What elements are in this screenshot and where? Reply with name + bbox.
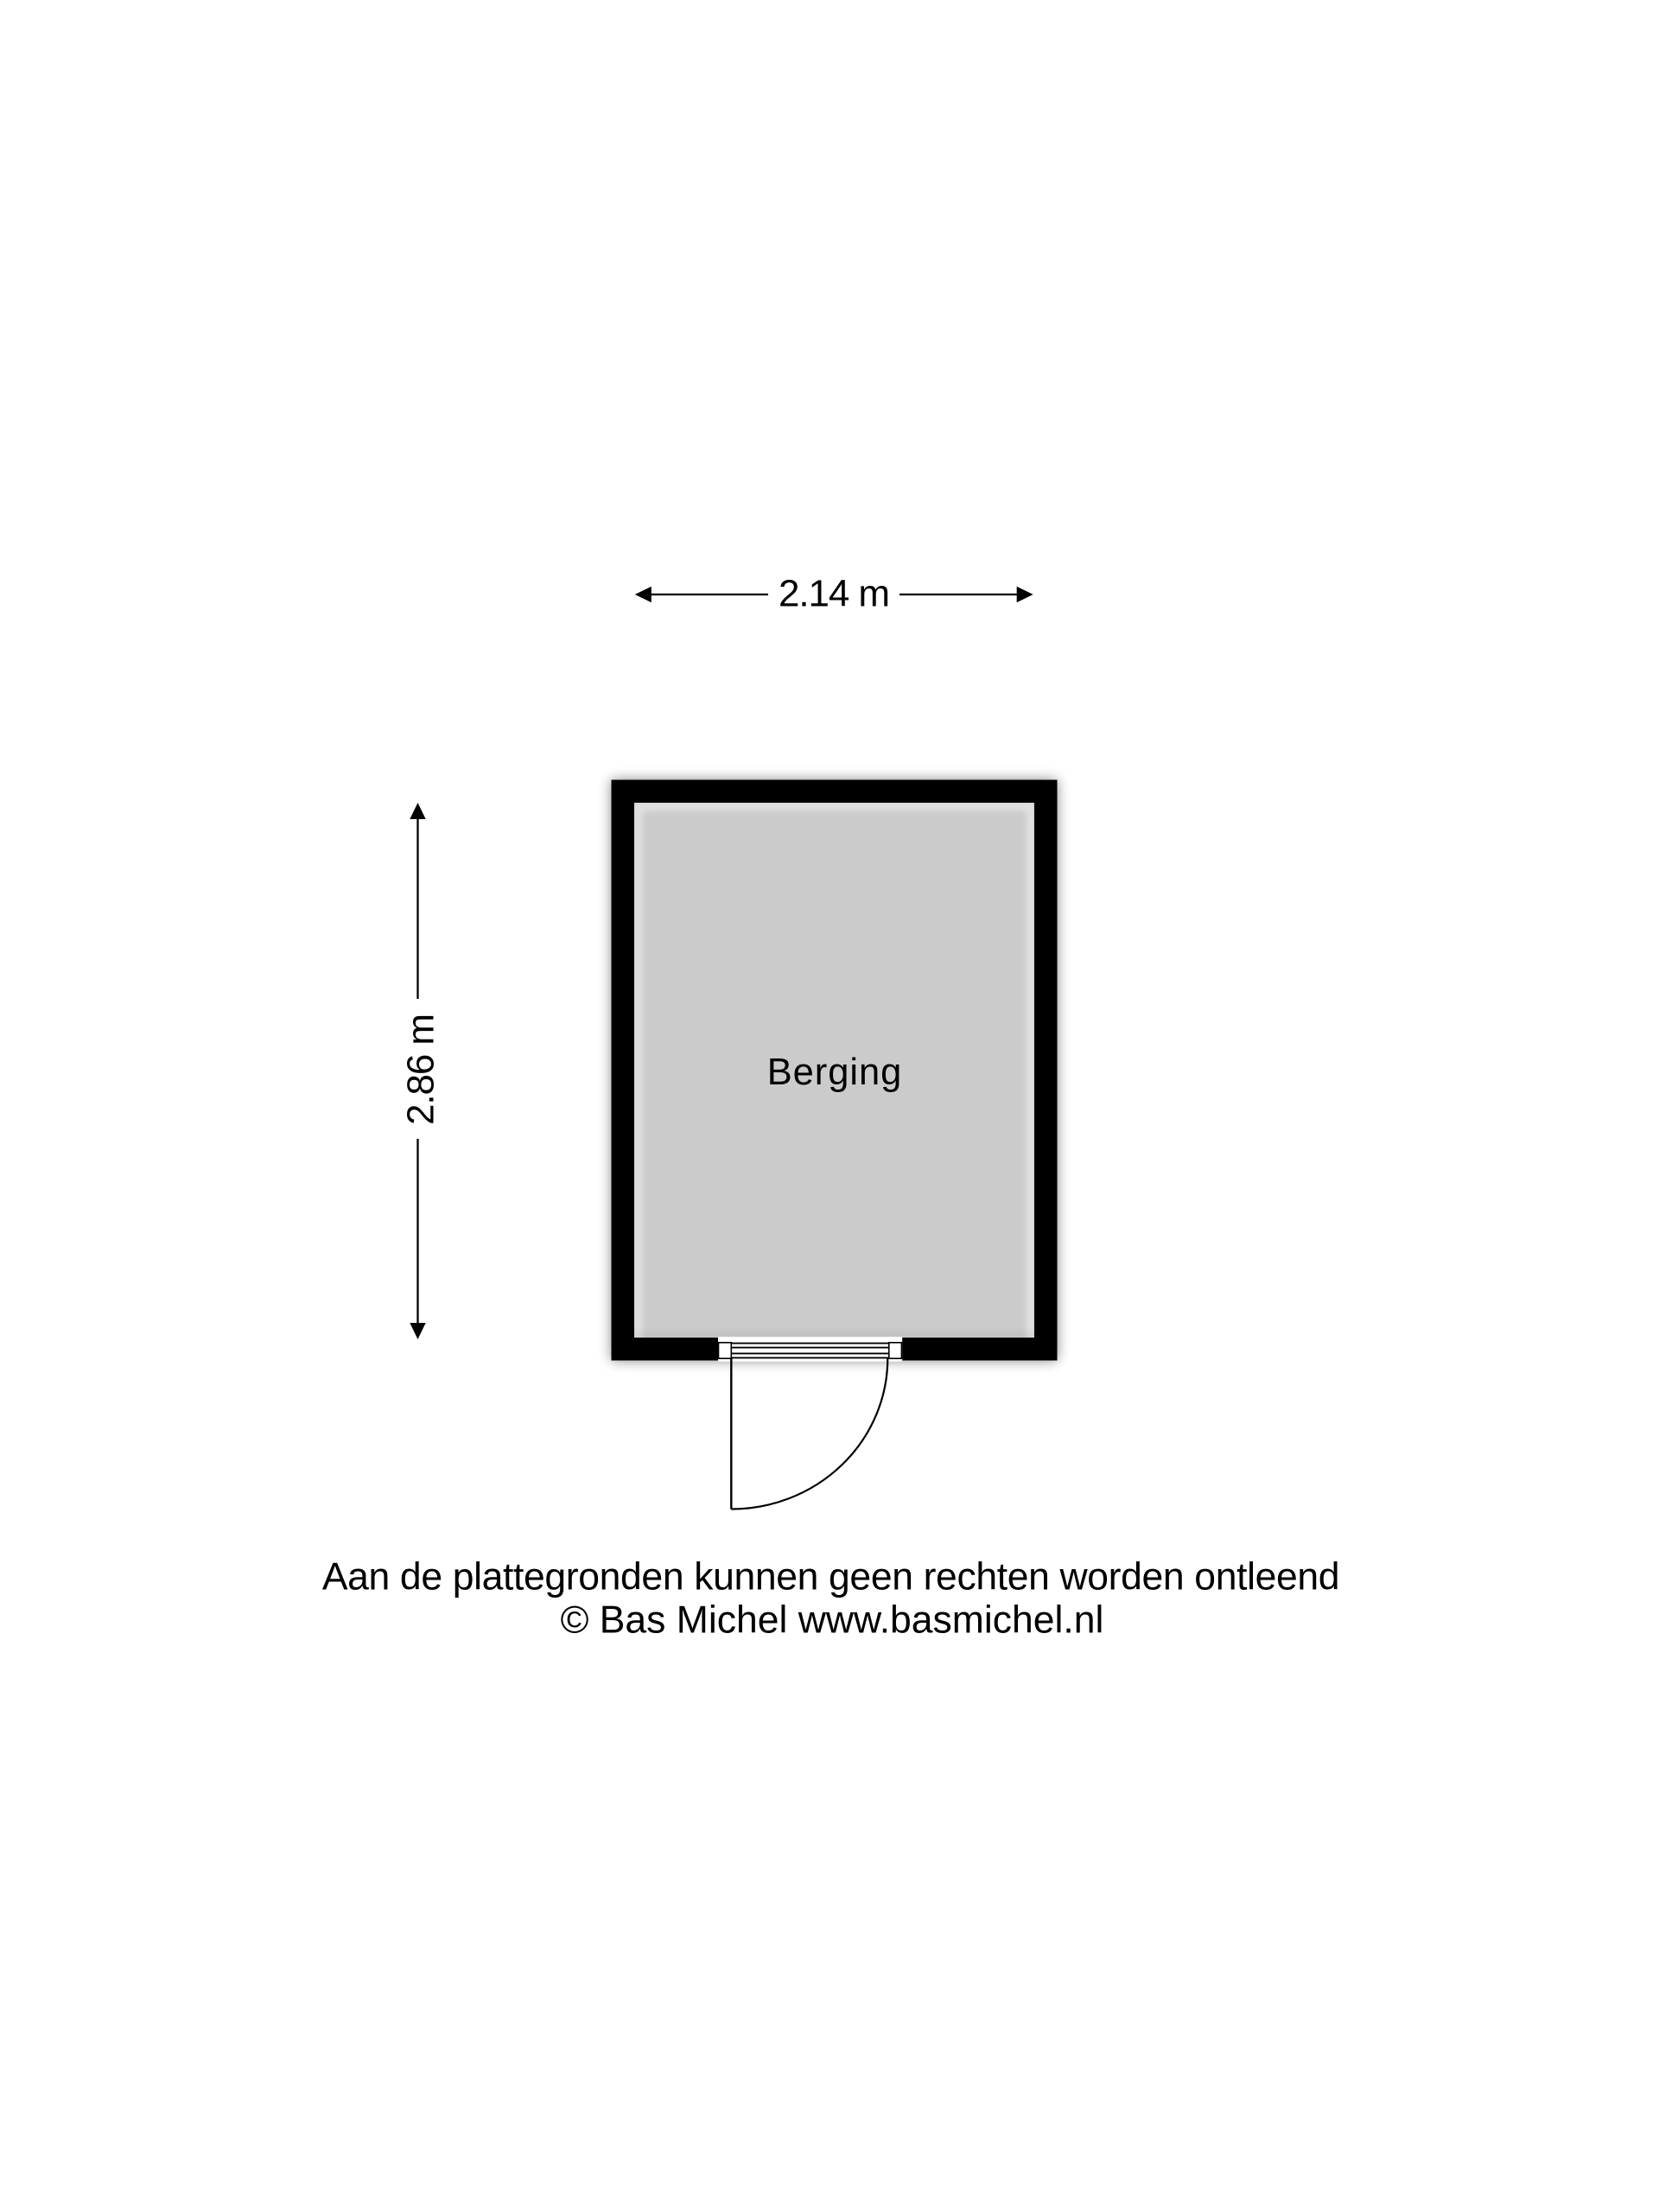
svg-text:2.14 m: 2.14 m (779, 573, 889, 615)
svg-text:© Bas Michel www.basmichel.nl: © Bas Michel www.basmichel.nl (561, 1599, 1104, 1642)
svg-text:Berging: Berging (767, 1052, 903, 1093)
svg-text:2.86 m: 2.86 m (400, 1014, 442, 1125)
svg-text:Aan de plattegronden kunnen ge: Aan de plattegronden kunnen geen rechten… (322, 1556, 1339, 1599)
